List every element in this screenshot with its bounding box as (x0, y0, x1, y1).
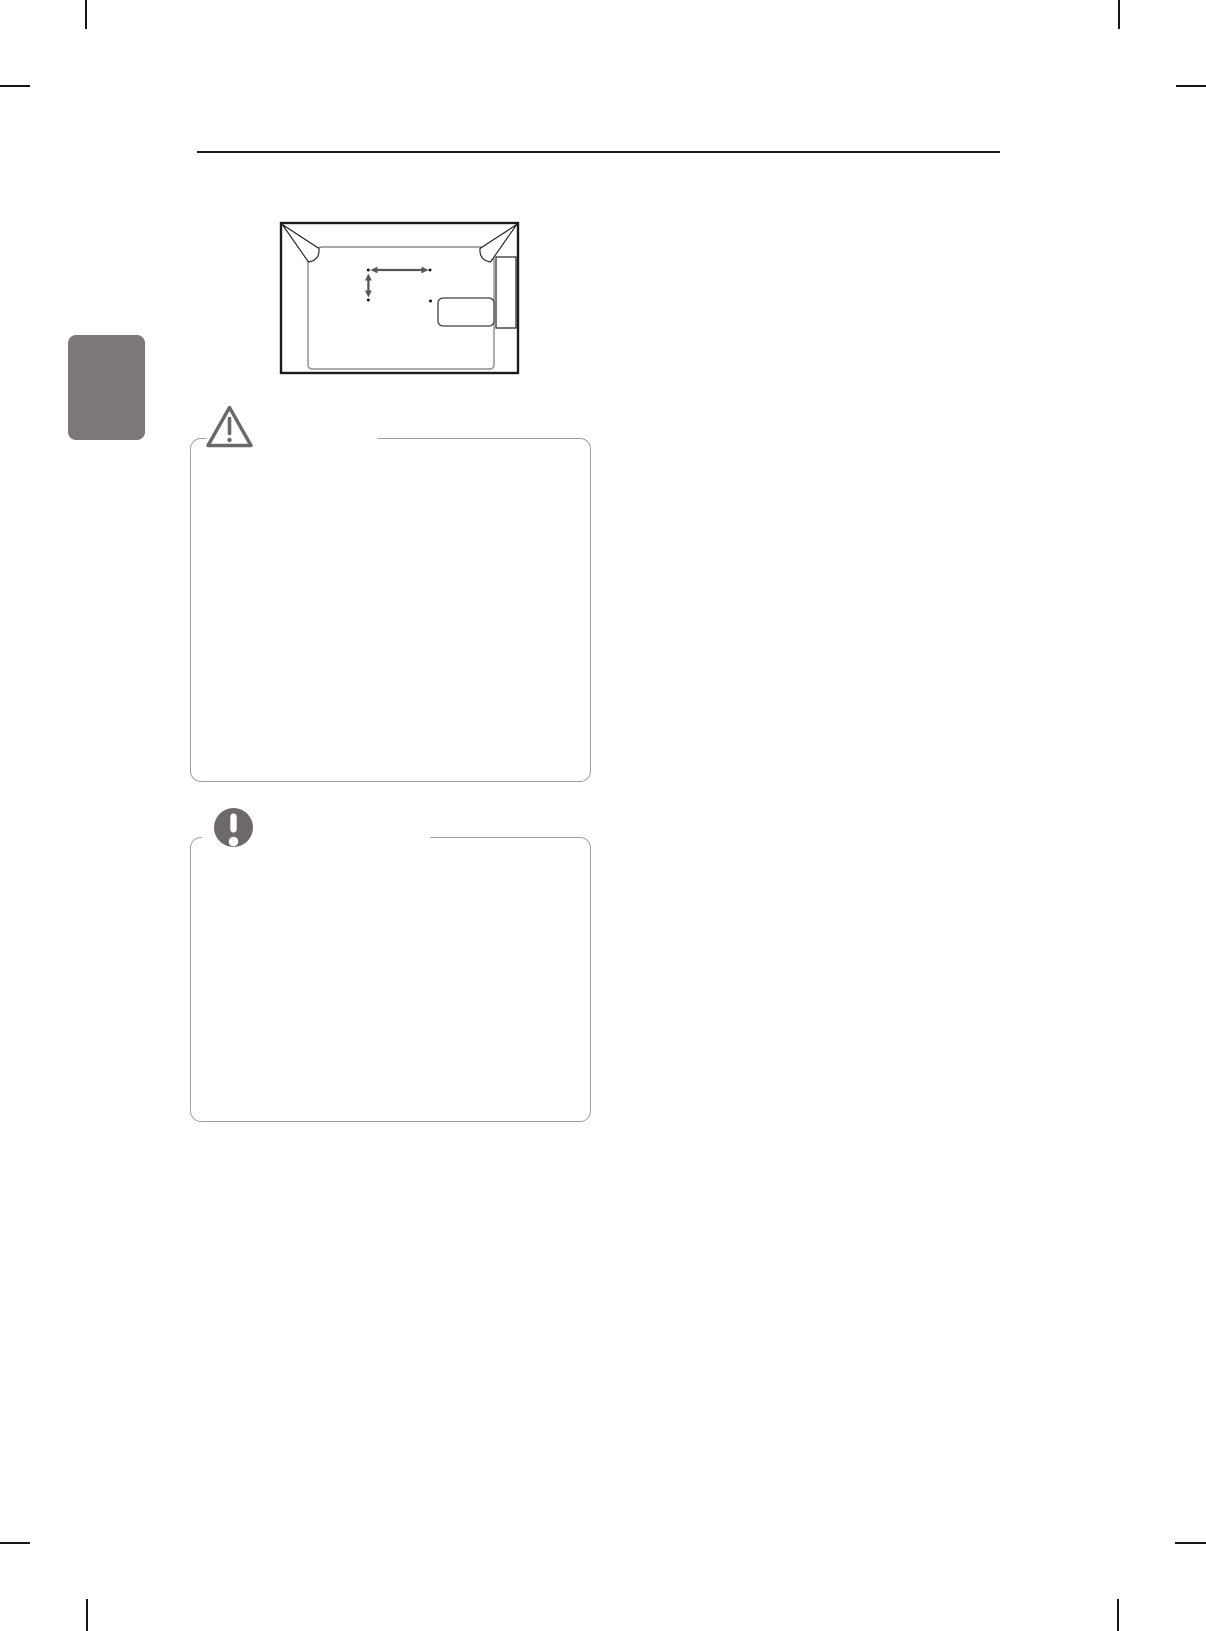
crop-mark-top-left-horizontal (0, 85, 30, 87)
label-plate (438, 298, 494, 326)
mount-hole-bottom-right (429, 300, 432, 303)
header-rule (197, 151, 1000, 153)
exclamation-circle-icon (213, 807, 254, 848)
crop-mark-bottom-left-vertical (86, 1599, 88, 1631)
manual-page (0, 0, 1206, 1631)
tv-rear-vesa-diagram (270, 210, 526, 380)
mount-hole-top-left (367, 269, 370, 272)
mount-hole-bottom-left (367, 299, 370, 302)
crop-mark-top-right-horizontal (1176, 85, 1206, 87)
crop-mark-bottom-right-vertical (1117, 1599, 1119, 1631)
caution-box (190, 438, 591, 782)
crop-mark-bottom-right-horizontal (1175, 1542, 1206, 1544)
warning-triangle-icon (205, 404, 254, 449)
crop-mark-bottom-left-horizontal (0, 1542, 30, 1544)
note-box (190, 837, 591, 1122)
section-language-tab (68, 335, 145, 440)
crop-mark-top-left-vertical (85, 0, 87, 29)
side-connector-panel (496, 257, 516, 328)
crop-mark-top-right-vertical (1118, 0, 1120, 29)
mount-hole-top-right (429, 269, 432, 272)
